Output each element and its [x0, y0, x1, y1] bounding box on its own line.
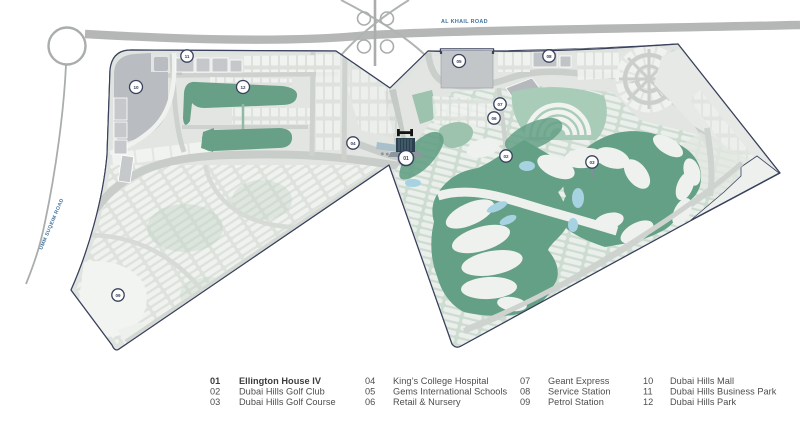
svg-text:Gems International Schools: Gems International Schools	[393, 386, 508, 396]
svg-text:Ellington House IV: Ellington House IV	[239, 376, 322, 386]
svg-text:AL KHAIL ROAD: AL KHAIL ROAD	[441, 19, 488, 25]
svg-text:07: 07	[497, 102, 503, 107]
svg-text:Retail & Nursery: Retail & Nursery	[393, 397, 461, 407]
svg-text:02: 02	[503, 154, 509, 159]
svg-text:06: 06	[491, 116, 497, 121]
svg-text:10: 10	[133, 85, 139, 90]
svg-text:11: 11	[185, 54, 190, 59]
svg-text:Dubai Hills Golf Course: Dubai Hills Golf Course	[239, 397, 336, 407]
svg-text:09: 09	[115, 293, 121, 298]
svg-text:05: 05	[456, 59, 462, 64]
svg-text:05: 05	[365, 386, 375, 396]
svg-text:01: 01	[403, 156, 409, 162]
svg-text:06: 06	[365, 397, 375, 407]
svg-text:08: 08	[546, 54, 552, 59]
svg-text:04: 04	[365, 376, 375, 386]
svg-text:Dubai Hills Mall: Dubai Hills Mall	[670, 376, 734, 386]
svg-text:01: 01	[210, 376, 220, 386]
svg-text:12: 12	[240, 85, 246, 90]
svg-text:Dubai Hills Business Park: Dubai Hills Business Park	[670, 386, 777, 396]
svg-text:11: 11	[643, 386, 653, 396]
svg-text:12: 12	[643, 397, 653, 407]
svg-text:Dubai Hills Golf Club: Dubai Hills Golf Club	[239, 386, 325, 396]
svg-text:Service Station: Service Station	[548, 386, 611, 396]
svg-text:07: 07	[520, 376, 530, 386]
svg-text:10: 10	[643, 376, 653, 386]
svg-text:04: 04	[350, 141, 356, 146]
svg-text:02: 02	[210, 386, 220, 396]
svg-text:09: 09	[520, 397, 530, 407]
svg-text:Geant Express: Geant Express	[548, 376, 610, 386]
svg-text:03: 03	[589, 160, 595, 165]
svg-text:Dubai Hills Park: Dubai Hills Park	[670, 397, 737, 407]
svg-text:King’s College Hospital: King’s College Hospital	[393, 376, 488, 386]
svg-text:08: 08	[520, 386, 530, 396]
svg-text:Petrol Station: Petrol Station	[548, 397, 604, 407]
svg-text:03: 03	[210, 397, 220, 407]
